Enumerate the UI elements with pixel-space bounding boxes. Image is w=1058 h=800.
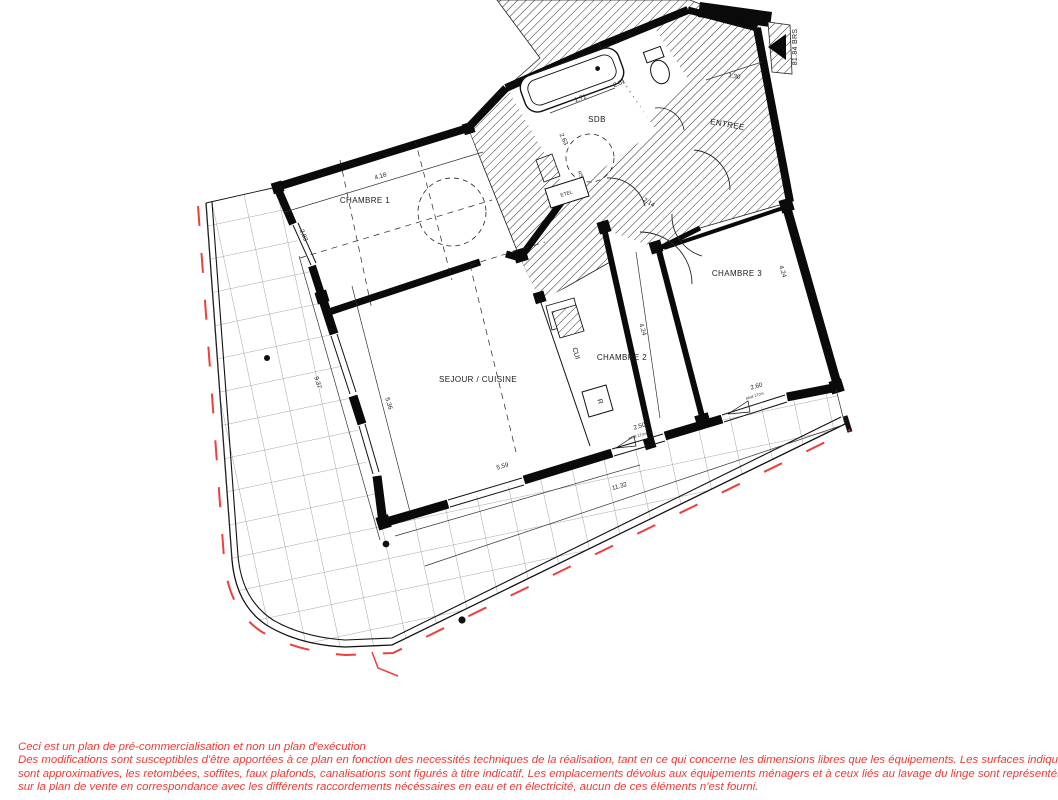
disclaimer-line-4: sur la plan de vente en correspondance a…: [18, 781, 1052, 794]
disclaimer-line-2: Des modifications sont susceptibles d'êt…: [18, 754, 1052, 767]
room-label-sejour: SEJOUR / CUISINE: [439, 375, 517, 384]
room-label-sdb: SDB: [588, 115, 606, 124]
room-label-chambre3: CHAMBRE 3: [712, 269, 762, 278]
floor-plan-page: CHAMBRE 1 CHAMBRE 2 CHAMBRE 3 SEJOUR / C…: [0, 0, 1058, 800]
room-label-chambre1: CHAMBRE 1: [340, 196, 390, 205]
room-label-chambre2: CHAMBRE 2: [597, 353, 647, 362]
disclaimer-line-1: Ceci est un plan de pré-commercialisatio…: [18, 741, 1052, 754]
disclaimer-block: Ceci est un plan de pré-commercialisatio…: [18, 741, 1052, 795]
elevation-label: 81.84 BRS: [792, 29, 799, 66]
floor-plan-drawing: CHAMBRE 1 CHAMBRE 2 CHAMBRE 3 SEJOUR / C…: [0, 0, 1058, 800]
disclaimer-line-3: sont approximatives, les retombées, soff…: [18, 768, 1052, 781]
